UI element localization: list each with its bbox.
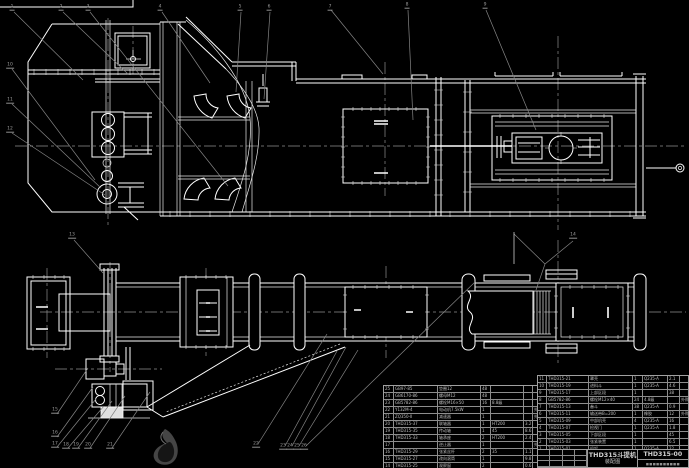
bom-cell: 19 bbox=[384, 428, 394, 434]
bom-cell: 0.9 bbox=[668, 404, 680, 410]
bom-cell: 2 bbox=[481, 449, 491, 455]
bom-cell: 张紧丝杆 bbox=[438, 449, 481, 455]
bom-cell: 1 bbox=[633, 376, 643, 382]
balloon-label: 7 bbox=[328, 5, 333, 11]
bom-cell: 1.8 bbox=[668, 425, 680, 431]
bom-cell: 4 bbox=[633, 418, 643, 424]
bom-cell: 3.2 bbox=[524, 421, 533, 427]
bom-cell bbox=[491, 393, 524, 399]
bom-cell: 输送带B=200 bbox=[589, 411, 633, 417]
bom-cell: 1 bbox=[481, 414, 491, 420]
bom-row: 16THD315-29张紧丝杆2351.1 bbox=[384, 449, 539, 456]
bom-cell: 逆止器 bbox=[438, 442, 481, 448]
bom-cell: 21 bbox=[384, 414, 394, 420]
bom-cell: Q235-A bbox=[643, 425, 668, 431]
bom-row: 17逆止器1外购 bbox=[384, 442, 539, 449]
bom-cell bbox=[491, 463, 524, 468]
bom-cell: 螺栓M12×40 bbox=[589, 397, 633, 403]
bom-row: 19THD315-35传动轴1458.6 bbox=[384, 428, 539, 435]
bom-cell: 10 bbox=[538, 383, 547, 389]
bom-cell: 23 bbox=[384, 400, 394, 406]
bom-cell bbox=[491, 386, 524, 392]
bom-cell: 25 bbox=[384, 386, 394, 392]
balloon-label: 21 bbox=[106, 443, 114, 449]
bom-cell: Q235-A bbox=[643, 383, 668, 389]
bom-cell: 外购 bbox=[680, 411, 689, 417]
bom-cell: ZQ350-Ⅱ bbox=[394, 414, 438, 420]
bom-cell bbox=[680, 404, 689, 410]
drawing-number-cell: THD315-00 ■■■■■■■■■■ bbox=[638, 450, 688, 467]
bom-cell: 5 bbox=[538, 418, 547, 424]
cad-viewport: 1234567891011121314151617181920212223242… bbox=[0, 0, 689, 468]
balloon-label: 16 bbox=[51, 431, 59, 437]
bom-cell bbox=[491, 442, 524, 448]
bom-cell: 15 bbox=[384, 456, 394, 462]
bom-cell: GB5782-86 bbox=[394, 400, 438, 406]
bom-cell: 4 bbox=[538, 425, 547, 431]
bom-cell: 1 bbox=[481, 428, 491, 434]
bom-cell: THD315-13 bbox=[547, 404, 589, 410]
bom-cell: 9.8 bbox=[524, 456, 533, 462]
balloon-label: 18 bbox=[62, 443, 70, 449]
balloon-label: 8 bbox=[405, 3, 410, 9]
balloon-label: 17 bbox=[51, 442, 59, 448]
bom-cell: 2 bbox=[481, 435, 491, 441]
bom-cell: THD315-17 bbox=[547, 390, 589, 396]
bom-cell: 35 bbox=[491, 449, 524, 455]
bom-cell bbox=[668, 397, 680, 403]
bom-row: 2THD315-03张紧装置16.5 bbox=[538, 439, 688, 446]
bom-cell: 11 bbox=[538, 376, 547, 382]
balloon-label: 26 bbox=[300, 444, 308, 450]
bom-cell: GB6170-86 bbox=[394, 393, 438, 399]
bom-cell: 联轴器 bbox=[438, 421, 481, 427]
bom-cell: 24 bbox=[633, 397, 643, 403]
bom-row: 11THD315-21罩壳1Q235-A2.1 bbox=[538, 376, 688, 383]
bom-cell: THD315-03 bbox=[547, 439, 589, 445]
bom-row: 6THD315-11输送带B=2001橡胶12外购 bbox=[538, 411, 688, 418]
bom-row: 8GB5782-86螺栓M12×40244.8级外购 bbox=[538, 397, 688, 404]
bom-cell: THD315-37 bbox=[394, 421, 438, 427]
bom-cell: 4.8级 bbox=[643, 397, 668, 403]
bom-cell: 38 bbox=[633, 404, 643, 410]
bom-cell bbox=[643, 432, 668, 438]
balloon-label: 14 bbox=[569, 233, 577, 239]
bom-cell: 48 bbox=[481, 393, 491, 399]
bom-cell: THD315-27 bbox=[394, 456, 438, 462]
bom-cell: GB97-85 bbox=[394, 386, 438, 392]
bom-cell: 垫圈12 bbox=[438, 386, 481, 392]
title-block: THD315斗提机 装配图 THD315-00 ■■■■■■■■■■ bbox=[537, 449, 689, 468]
bom-cell: Q235-A bbox=[643, 418, 668, 424]
bom-row: 3THD315-05下部区段145 bbox=[538, 432, 688, 439]
bom-cell bbox=[394, 442, 438, 448]
bom-cell: 观察窗 bbox=[438, 463, 481, 468]
bom-cell bbox=[680, 383, 689, 389]
bom-row: 24GB6170-86螺母M1248 bbox=[384, 393, 539, 400]
bom-cell: 1.1 bbox=[524, 449, 533, 455]
bom-cell: 4.6 bbox=[668, 383, 680, 389]
bom-row: 10THD315-19进料斗1Q235-A4.6 bbox=[538, 383, 688, 390]
bom-cell: 45 bbox=[491, 428, 524, 434]
balloon-label: 11 bbox=[6, 98, 14, 104]
balloon-label: 12 bbox=[6, 127, 14, 133]
bom-cell: 8.8级 bbox=[491, 400, 524, 406]
bom-cell: 6 bbox=[538, 411, 547, 417]
bom-cell: 16 bbox=[481, 400, 491, 406]
balloon-label: 6 bbox=[267, 5, 272, 11]
bom-cell bbox=[491, 407, 524, 413]
bom-cell: 1 bbox=[633, 439, 643, 445]
bom-row: 4THD315-07检视门1Q235-A1.8 bbox=[538, 425, 688, 432]
bom-cell: 张紧装置 bbox=[589, 439, 633, 445]
bom-cell: 7 bbox=[538, 404, 547, 410]
bom-cell: 螺栓M16×50 bbox=[438, 400, 481, 406]
bom-cell bbox=[680, 432, 689, 438]
bom-cell: 改向滚筒 bbox=[438, 456, 481, 462]
org-line: ■■■■■■■■■■ bbox=[638, 460, 688, 467]
bom-cell: 橡胶 bbox=[643, 411, 668, 417]
bom-cell: 轴承座 bbox=[438, 435, 481, 441]
bom-row: 15THD315-27改向滚筒19.8 bbox=[384, 456, 539, 463]
bom-cell: THD315-19 bbox=[547, 383, 589, 389]
balloon-label: 9 bbox=[483, 3, 488, 9]
bom-cell: GB5782-86 bbox=[547, 397, 589, 403]
bom-cell: 3 bbox=[538, 432, 547, 438]
bom-row: 7THD315-13畚斗38Q235-A0.9 bbox=[538, 404, 688, 411]
bom-cell: THD315-11 bbox=[547, 411, 589, 417]
bom-cell: 减速器 bbox=[438, 414, 481, 420]
bom-cell: 畚斗 bbox=[589, 404, 633, 410]
bom-cell: Q235-A bbox=[643, 376, 668, 382]
bom-row: 23GB5782-86螺栓M16×50168.8级 bbox=[384, 400, 539, 407]
bom-cell: 1 bbox=[481, 442, 491, 448]
bom-cell: 24 bbox=[384, 393, 394, 399]
bom-cell bbox=[680, 376, 689, 382]
bom-cell bbox=[680, 425, 689, 431]
drawing-subtitle: 装配图 bbox=[588, 459, 636, 465]
drawing-title: THD315斗提机 bbox=[588, 452, 636, 459]
bom-cell: 1 bbox=[633, 383, 643, 389]
bom-row: 18THD315-33轴承座2HT2002.4 bbox=[384, 435, 539, 442]
balloon-label: 15 bbox=[51, 408, 59, 414]
bom-cell: 上部区段 bbox=[589, 390, 633, 396]
bom-cell bbox=[680, 390, 689, 396]
balloon-label: 3 bbox=[86, 5, 91, 11]
bom-cell: 8 bbox=[538, 397, 547, 403]
bom-cell: Q235-A bbox=[643, 404, 668, 410]
bom-cell: THD315-33 bbox=[394, 435, 438, 441]
bom-cell: 进料斗 bbox=[589, 383, 633, 389]
bom-cell bbox=[643, 439, 668, 445]
bom-cell: 17 bbox=[384, 442, 394, 448]
balloon-label: 5 bbox=[238, 5, 243, 11]
bom-cell: 2 bbox=[481, 463, 491, 468]
bom-cell: THD315-25 bbox=[394, 463, 438, 468]
bom-cell bbox=[643, 390, 668, 396]
bom-cell: 14 bbox=[384, 463, 394, 468]
bom-cell: 16 bbox=[668, 418, 680, 424]
bom-cell: Y132M-4 bbox=[394, 407, 438, 413]
bom-cell: 6.5 bbox=[668, 439, 680, 445]
bom-cell: 9 bbox=[538, 390, 547, 396]
bom-cell bbox=[524, 407, 533, 413]
balloon-label: 10 bbox=[6, 63, 14, 69]
balloon-label: 1 bbox=[10, 5, 15, 11]
bom-row: 21ZQ350-Ⅱ减速器1外购 bbox=[384, 414, 539, 421]
bom-cell: 16 bbox=[384, 449, 394, 455]
bom-cell: 45 bbox=[668, 432, 680, 438]
bom-cell: 螺母M12 bbox=[438, 393, 481, 399]
bom-cell bbox=[491, 414, 524, 420]
bom-table-left: 25GB97-85垫圈124824GB6170-86螺母M124823GB578… bbox=[383, 385, 540, 468]
bom-cell: 检视门 bbox=[589, 425, 633, 431]
bom-row: 14THD315-25观察窗20.6 bbox=[384, 463, 539, 468]
bom-cell: 1 bbox=[633, 425, 643, 431]
balloon-label: 19 bbox=[72, 443, 80, 449]
bom-cell bbox=[524, 442, 533, 448]
bom-cell: THD315-05 bbox=[547, 432, 589, 438]
bom-cell: 传动轴 bbox=[438, 428, 481, 434]
bom-cell: 12 bbox=[668, 411, 680, 417]
ink-blob bbox=[154, 429, 178, 465]
bom-cell bbox=[524, 386, 533, 392]
bom-cell: HT200 bbox=[491, 435, 524, 441]
bom-cell: THD315-29 bbox=[394, 449, 438, 455]
bom-cell: 0.6 bbox=[524, 463, 533, 468]
bom-cell bbox=[491, 456, 524, 462]
bom-cell: 中部机壳 bbox=[589, 418, 633, 424]
bom-cell: 8.6 bbox=[524, 428, 533, 434]
bom-cell: THD315-09 bbox=[547, 418, 589, 424]
bom-cell: 1 bbox=[633, 411, 643, 417]
bom-cell: 2.1 bbox=[668, 376, 680, 382]
bom-cell: 20 bbox=[384, 421, 394, 427]
frame-corner bbox=[0, 0, 133, 7]
bom-cell bbox=[680, 418, 689, 424]
bom-cell bbox=[524, 414, 533, 420]
balloon-label: 22 bbox=[252, 442, 260, 448]
bom-cell: 电动机7.5kW bbox=[438, 407, 481, 413]
drawing-number: THD315-00 bbox=[638, 450, 688, 460]
bom-cell: 下部区段 bbox=[589, 432, 633, 438]
signature-grid bbox=[538, 450, 588, 467]
bom-row: 9THD315-17上部区段138 bbox=[538, 390, 688, 397]
bom-row: 25GB97-85垫圈1248 bbox=[384, 386, 539, 393]
bom-cell: THD315-35 bbox=[394, 428, 438, 434]
bom-cell: THD315-07 bbox=[547, 425, 589, 431]
drawing-title-cell: THD315斗提机 装配图 bbox=[588, 450, 637, 467]
bom-cell: 18 bbox=[384, 435, 394, 441]
balloon-label: 13 bbox=[68, 233, 76, 239]
bom-cell bbox=[524, 400, 533, 406]
bom-cell: 38 bbox=[668, 390, 680, 396]
bom-row: 5THD315-09中部机壳4Q235-A16 bbox=[538, 418, 688, 425]
bom-cell: 2 bbox=[538, 439, 547, 445]
bom-cell: 1 bbox=[481, 407, 491, 413]
balloon-label: 20 bbox=[84, 443, 92, 449]
top-view bbox=[15, 17, 686, 230]
bom-row: 22Y132M-4电动机7.5kW1外购 bbox=[384, 407, 539, 414]
bom-cell: 1 bbox=[481, 421, 491, 427]
bom-cell bbox=[680, 439, 689, 445]
bom-cell: 2.4 bbox=[524, 435, 533, 441]
bom-cell: 22 bbox=[384, 407, 394, 413]
balloon-label: 4 bbox=[158, 5, 163, 11]
bom-cell: 1 bbox=[633, 432, 643, 438]
bom-cell bbox=[524, 393, 533, 399]
bom-cell: HT200 bbox=[491, 421, 524, 427]
bom-cell: 1 bbox=[633, 390, 643, 396]
bom-cell: 1 bbox=[481, 456, 491, 462]
bom-row: 20THD315-37联轴器1HT2003.2 bbox=[384, 421, 539, 428]
bom-cell: 罩壳 bbox=[589, 376, 633, 382]
balloon-label: 2 bbox=[59, 5, 64, 11]
bom-cell: 外购 bbox=[680, 397, 689, 403]
bom-cell: 48 bbox=[481, 386, 491, 392]
bom-cell: THD315-21 bbox=[547, 376, 589, 382]
